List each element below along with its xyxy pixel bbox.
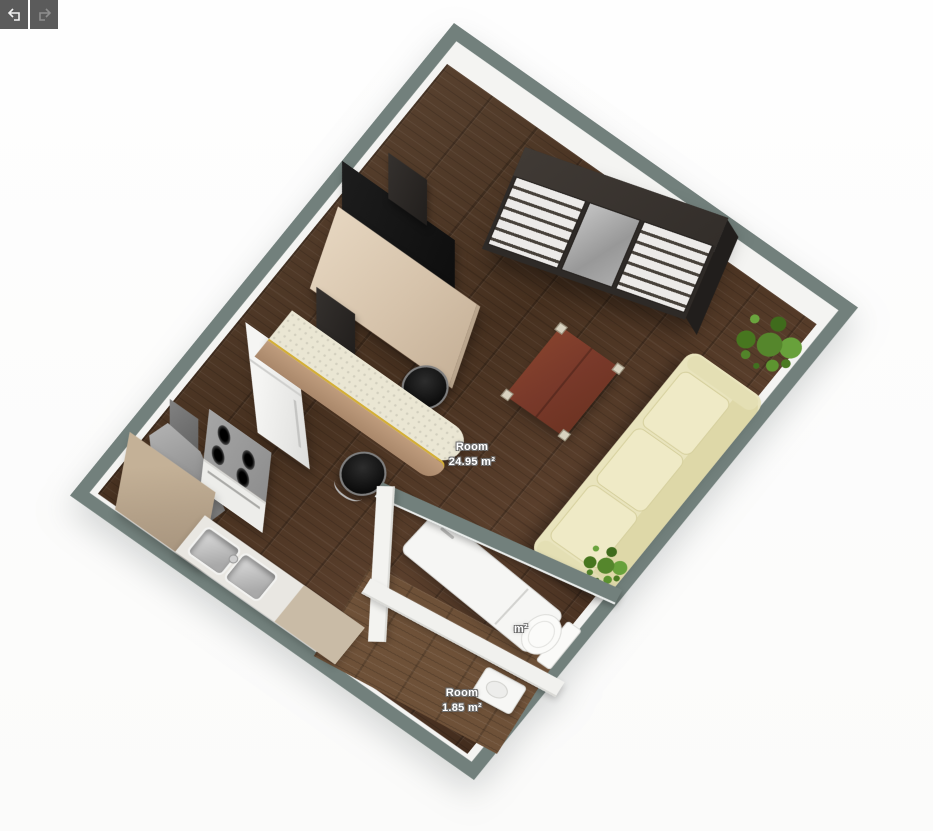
shower-glass xyxy=(494,588,529,625)
floorplan-3d-view[interactable] xyxy=(70,23,858,780)
undo-button[interactable] xyxy=(0,0,28,29)
fridge-handle xyxy=(294,399,302,448)
redo-arrow-icon xyxy=(36,7,53,23)
redo-button[interactable] xyxy=(30,0,58,29)
floorplanner-canvas: Room 24.95 m² Room 1.85 m² m² xyxy=(0,0,933,831)
burner xyxy=(217,422,232,449)
undo-arrow-icon xyxy=(6,7,23,23)
